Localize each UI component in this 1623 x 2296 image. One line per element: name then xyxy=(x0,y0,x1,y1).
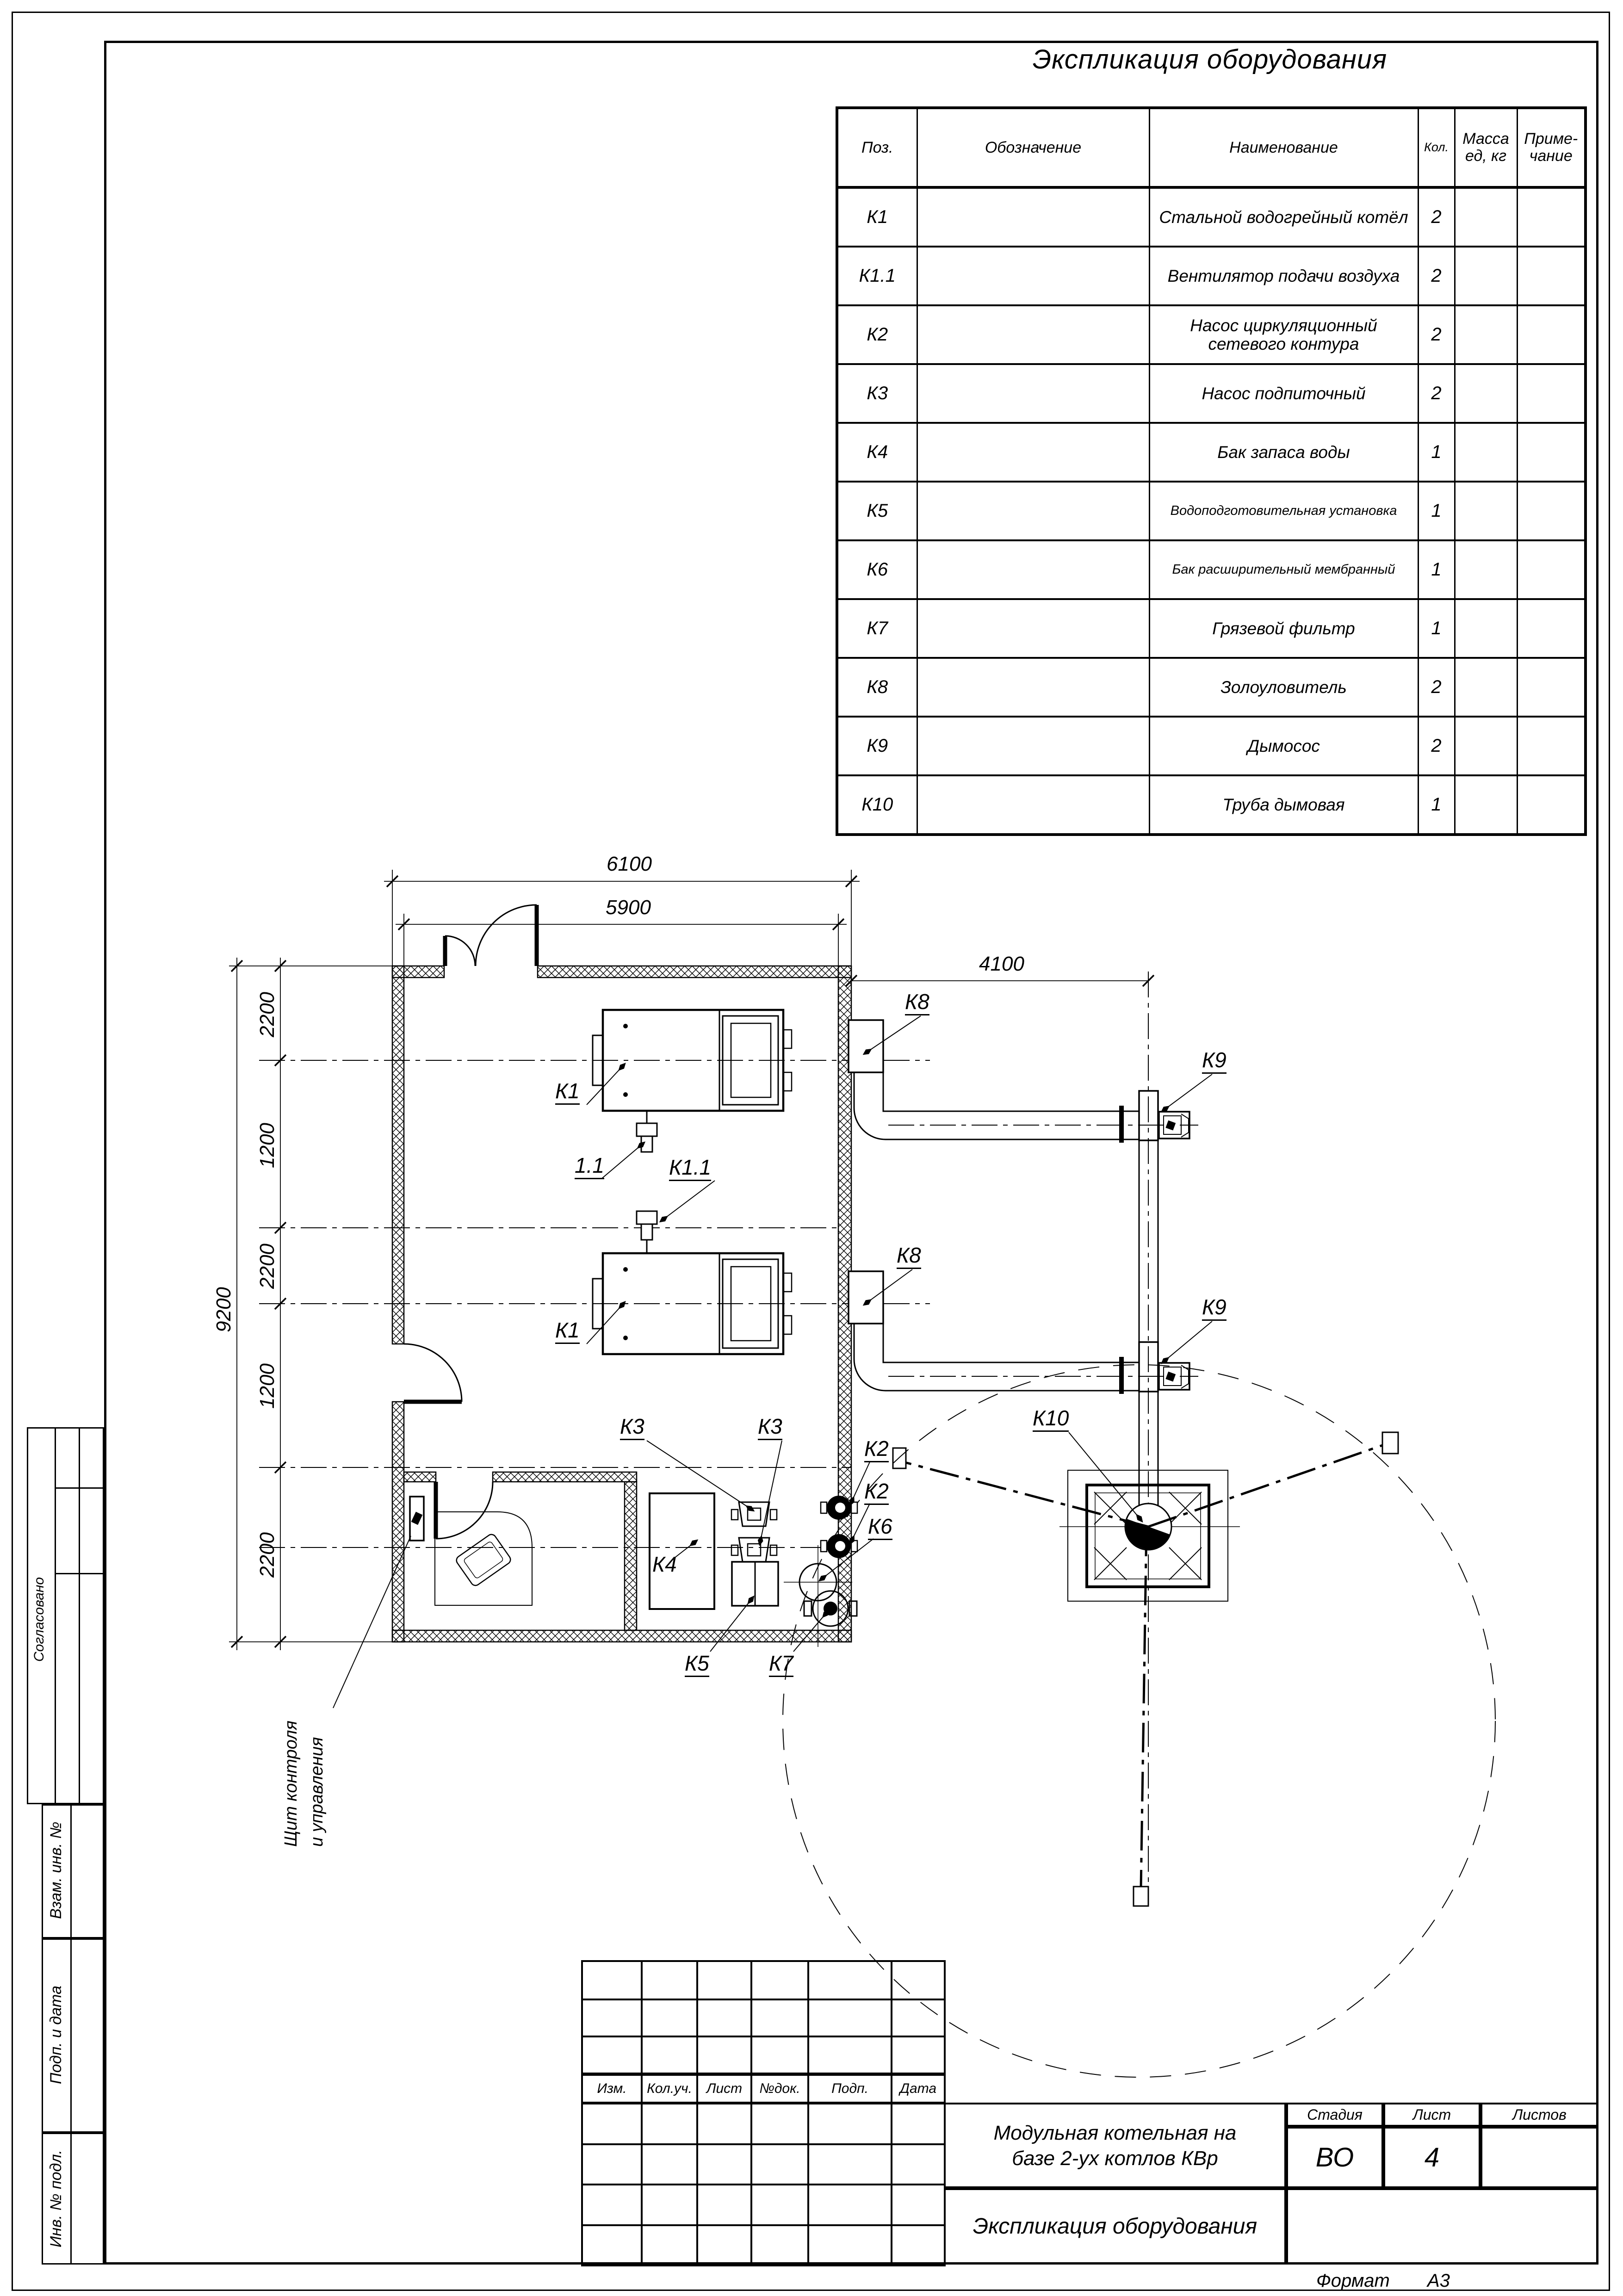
dimension-ticks xyxy=(231,876,1154,1647)
plan-label-k9-first: К9 xyxy=(1202,1049,1227,1074)
plan-label-k10: К10 xyxy=(1033,1407,1069,1432)
format-value: А3 xyxy=(1427,2271,1450,2291)
equipment-table: Поз. Обозначение Наименование Кол. Масса… xyxy=(836,106,1587,836)
plan-label-1-1: 1.1 xyxy=(575,1155,604,1179)
sheet-value-cell: 4 xyxy=(1383,2127,1481,2188)
plan-label-k3-first: К3 xyxy=(620,1416,644,1440)
table-row: К10Труба дымовая1 xyxy=(837,775,1586,835)
sheet-title-cell: Экспликация оборудования xyxy=(944,2188,1286,2265)
podp-label: Подп. и дата xyxy=(48,1986,64,2084)
plan-label-k7: К7 xyxy=(769,1652,793,1677)
table-row: К9Дымосос2 xyxy=(837,717,1586,775)
col-mass: Масса ед, кг xyxy=(1455,108,1517,187)
table-row: К1.1Вентилятор подачи воздуха2 xyxy=(837,247,1586,305)
pump-k3-second xyxy=(731,1538,777,1562)
table-row: К7Грязевой фильтр1 xyxy=(837,599,1586,658)
plan-label-k5: К5 xyxy=(685,1652,709,1677)
col-pos: Поз. xyxy=(837,108,917,187)
door-partition xyxy=(436,1482,493,1539)
pump-k3 xyxy=(731,1502,777,1526)
table-row: К6Бак расширительный мембранный1 xyxy=(837,540,1586,599)
dim-9200: 9200 xyxy=(214,1287,234,1332)
plan-label-k1-first: К1 xyxy=(555,1080,580,1105)
dim-1200-1: 1200 xyxy=(257,1123,278,1168)
table-title: Экспликация оборудования xyxy=(836,44,1584,75)
sheets-value-cell xyxy=(1481,2127,1598,2188)
plan-label-k3-second: К3 xyxy=(758,1416,782,1440)
col-qty: Кол. xyxy=(1418,108,1455,187)
stage-label-cell: Стадия xyxy=(1286,2103,1383,2127)
dim-2200-2: 2200 xyxy=(257,1244,278,1289)
dim-2200-3: 2200 xyxy=(257,1532,278,1578)
plan-label-k8-first: К8 xyxy=(905,991,929,1015)
flue-line-1 xyxy=(849,1020,1189,1143)
dimension-lines xyxy=(229,870,1148,1650)
dim-5900: 5900 xyxy=(582,897,675,918)
agreed-label: Согласовано xyxy=(32,1577,46,1662)
plan-label-k1-second: К1 xyxy=(555,1319,580,1344)
vzam-label: Взам. инв. № xyxy=(48,1822,64,1919)
plan-label-k9-second: К9 xyxy=(1202,1296,1227,1321)
door-left xyxy=(404,1344,462,1402)
plan-label-k1-1: К1.1 xyxy=(669,1157,711,1181)
rev-col-podp: Подп. xyxy=(808,2073,892,2104)
dim-1200-2: 1200 xyxy=(257,1363,278,1409)
drawing-sheet: Экспликация оборудования Поз. Обозначени… xyxy=(0,0,1623,2296)
table-row: К4Бак запаса воды1 xyxy=(837,423,1586,482)
plan-label-k6: К6 xyxy=(868,1516,892,1540)
chimney-k10 xyxy=(1059,1470,1240,1601)
signature-cell xyxy=(1286,2188,1598,2265)
table-row: К1Стальной водогрейный котёл2 xyxy=(837,187,1586,247)
sheets-label-cell: Листов xyxy=(1481,2103,1598,2127)
col-note: Приме- чание xyxy=(1517,108,1586,187)
flue-line-2 xyxy=(849,1271,1189,1394)
plan-label-k2-second: К2 xyxy=(864,1480,889,1505)
revision-table: Изм. Кол.уч. Лист №док. Подп. Дата xyxy=(581,1960,946,2266)
table-row: К5Водоподготовительная установка1 xyxy=(837,482,1586,540)
table-row: К2Насос циркуляционный сетевого контура2 xyxy=(837,305,1586,364)
equipment-table-header-row: Поз. Обозначение Наименование Кол. Масса… xyxy=(837,108,1586,187)
dim-4100: 4100 xyxy=(955,954,1048,974)
plan-label-k2-first: К2 xyxy=(864,1438,889,1462)
plan-label-k8-second: К8 xyxy=(897,1244,921,1269)
table-row: К8Золоуловитель2 xyxy=(837,658,1586,717)
rev-col-ndok: №док. xyxy=(751,2073,808,2104)
rev-col-list: Лист xyxy=(697,2073,751,2104)
rev-col-izm: Изм. xyxy=(582,2073,642,2104)
plan-label-k4: К4 xyxy=(652,1553,677,1577)
gate-top xyxy=(445,905,537,966)
sink xyxy=(435,1512,532,1605)
vent-fittings xyxy=(637,1111,657,1253)
tank-k4 xyxy=(650,1493,714,1609)
unit-k5 xyxy=(732,1562,778,1606)
table-row: К3Насос подпиточный2 xyxy=(837,364,1586,423)
project-title-cell: Модульная котельная на базе 2-ух котлов … xyxy=(944,2103,1286,2188)
col-name: Наименование xyxy=(1149,108,1418,187)
rev-col-koluch: Кол.уч. xyxy=(642,2073,697,2104)
rev-col-data: Дата xyxy=(892,2073,945,2104)
format-label: Формат xyxy=(1316,2271,1390,2291)
control-panel xyxy=(410,1497,424,1541)
inv-label: Инв. № подл. xyxy=(48,2150,64,2247)
col-designation: Обозначение xyxy=(917,108,1149,187)
control-panel-note-line1: Щит контроля xyxy=(281,1720,301,1847)
stage-value-cell: ВО xyxy=(1286,2127,1383,2188)
sheet-label-cell: Лист xyxy=(1383,2103,1481,2127)
control-panel-note-line2: и управления xyxy=(307,1737,327,1847)
dim-6100: 6100 xyxy=(583,854,675,874)
dim-2200-1: 2200 xyxy=(257,992,278,1037)
